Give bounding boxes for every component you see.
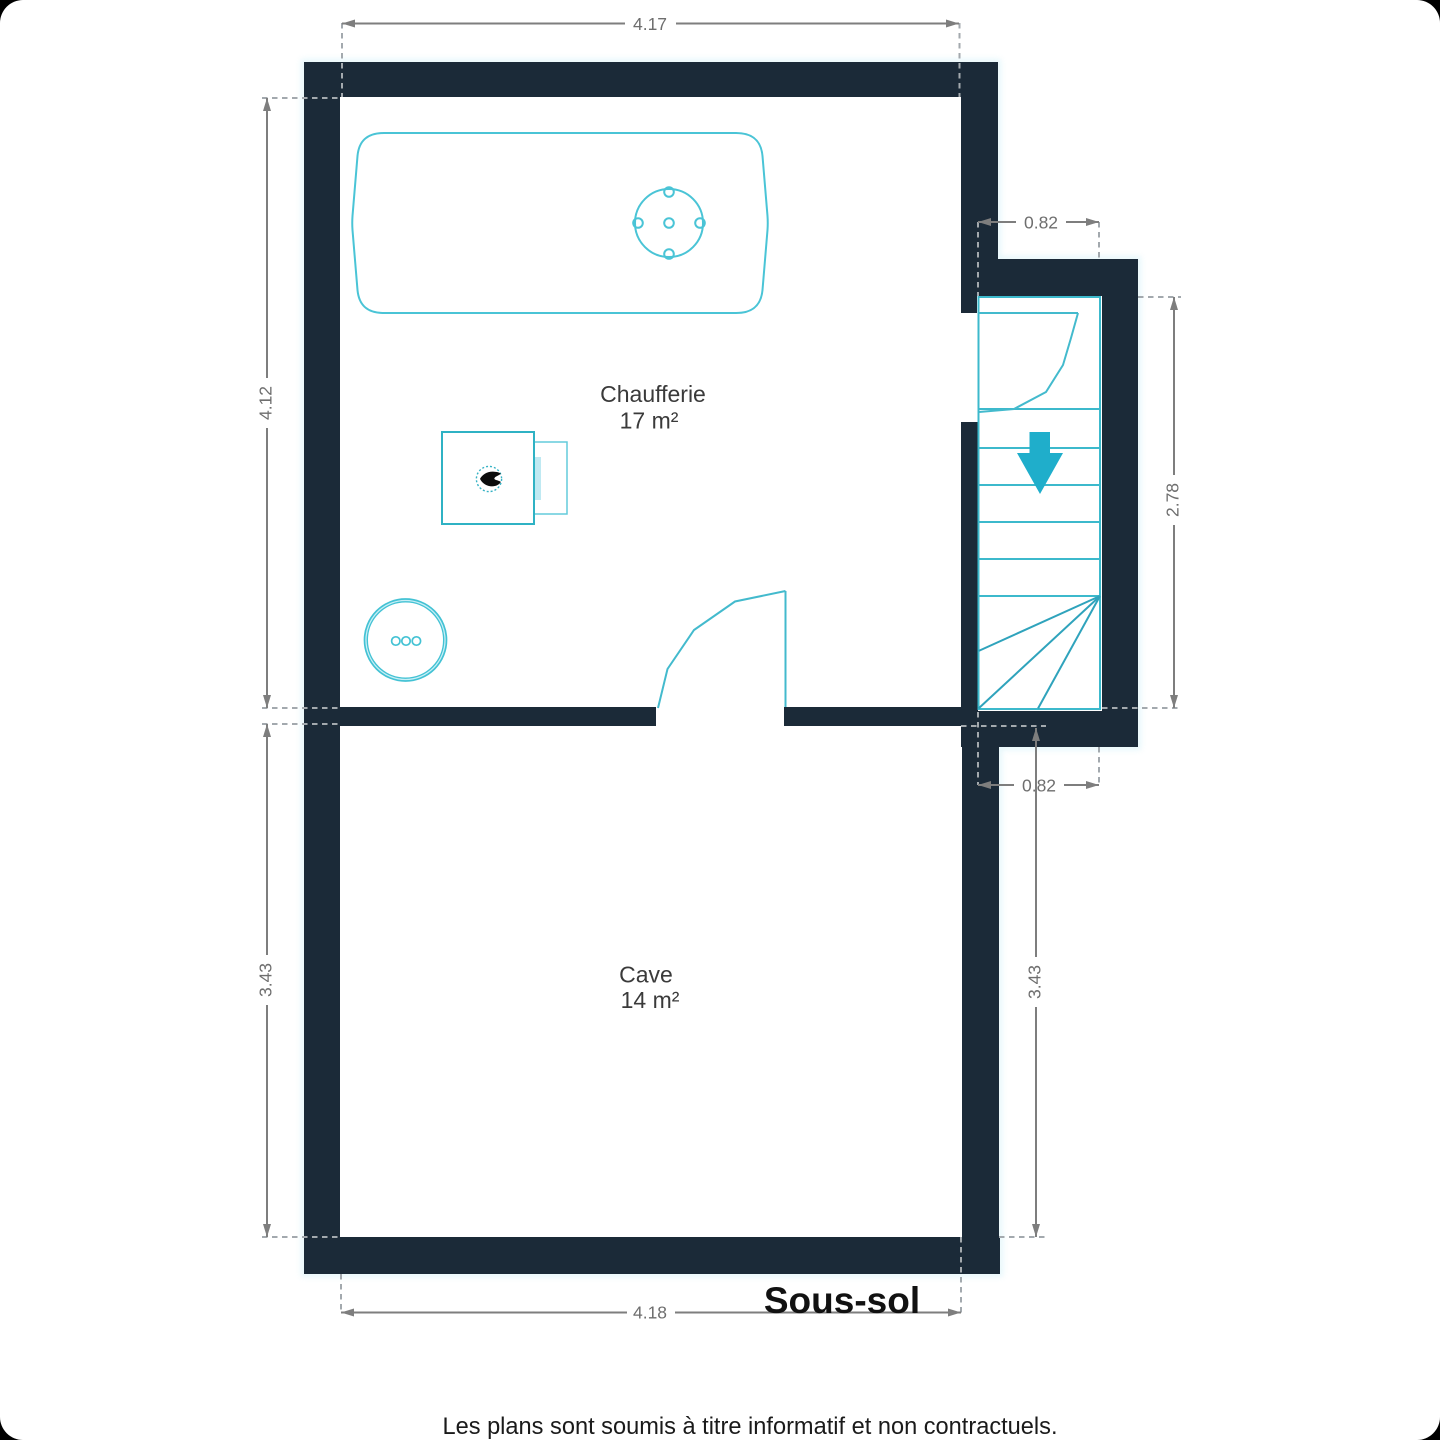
svg-text:0.82: 0.82 [1022,776,1056,796]
svg-text:3.43: 3.43 [1025,965,1045,999]
svg-text:2.78: 2.78 [1163,483,1183,517]
svg-text:14 m²: 14 m² [621,987,680,1013]
svg-text:0.82: 0.82 [1024,213,1058,233]
svg-text:4.17: 4.17 [633,14,667,34]
svg-text:Sous-sol: Sous-sol [764,1280,920,1321]
svg-text:17 m²: 17 m² [620,408,679,434]
svg-text:4.18: 4.18 [633,1303,667,1323]
svg-text:Chaufferie: Chaufferie [600,381,706,407]
svg-text:3.43: 3.43 [256,963,276,997]
svg-text:Cave: Cave [619,962,673,988]
svg-text:4.12: 4.12 [256,386,276,420]
svg-text:Les plans sont soumis à titre: Les plans sont soumis à titre informatif… [442,1414,1057,1440]
